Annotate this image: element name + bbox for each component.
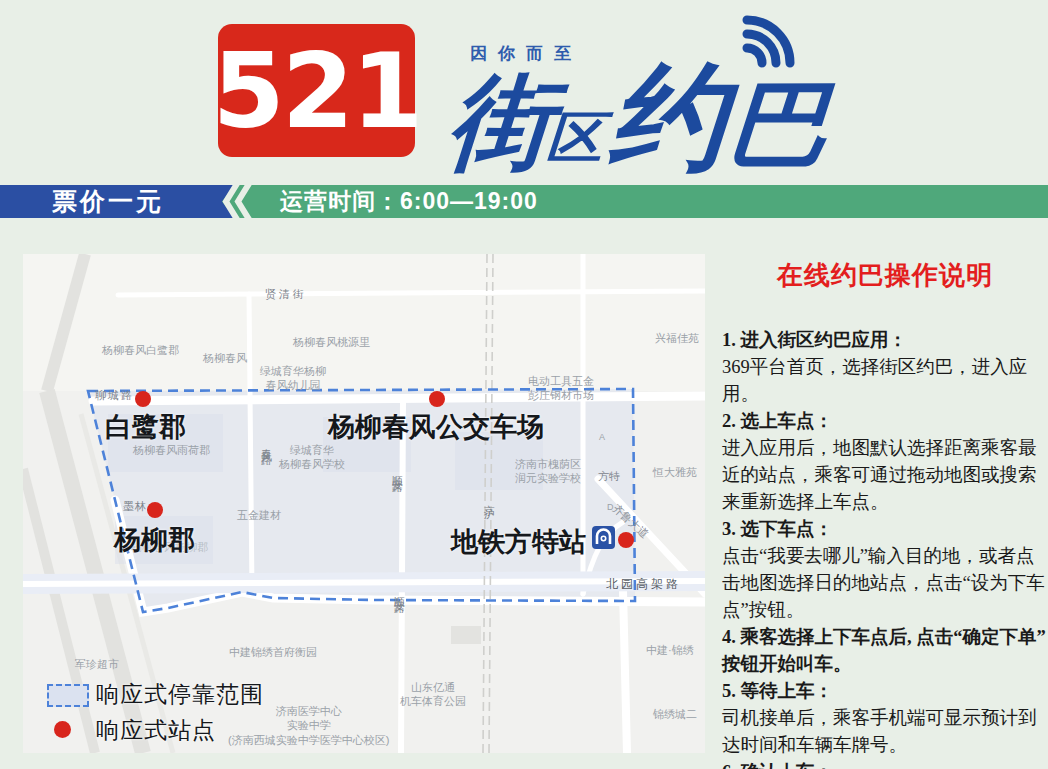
map-label: 绿城育华 杨柳春风学校 (279, 443, 345, 472)
legend-station-label: 响应式站点 (96, 715, 216, 746)
step-body: 司机接单后，乘客手机端可显示预计到达时间和车辆车牌号。 (722, 705, 1048, 759)
map-label: 杨柳春风桃源里 (293, 335, 370, 349)
wifi-signal-icon (733, 4, 805, 80)
instruction-step: 4. 乘客选择上下车点后, 点击“确定下单”按钮开始叫车。 (722, 624, 1048, 678)
step-heading: 5. 等待上车： (722, 678, 1048, 705)
info-banner: 票价一元 运营时间：6:00—19:00 (0, 185, 1048, 218)
instruction-step: 3. 选下车点：点击“我要去哪儿”输入目的地，或者点击地图选择日的地站点，点击“… (722, 516, 1048, 624)
map-label: 电动工具五金 彭庄钢材市场 (528, 374, 594, 403)
map-label: 顺安路 (392, 588, 406, 597)
step-body: 点击“我要去哪儿”输入目的地，或者点击地图选择日的地站点，点击“设为下车点”按钮… (722, 543, 1048, 624)
instruction-step: 2. 选上车点：进入应用后，地图默认选择距离乘客最近的站点，乘客可通过拖动地图或… (722, 408, 1048, 516)
instruction-step: 5. 等待上车：司机接单后，乘客手机端可显示预计到达时间和车辆车牌号。 (722, 678, 1048, 759)
map-label: 山东亿通 机车体育公园 (400, 680, 466, 709)
station-label: 杨柳春风公交车场 (328, 409, 544, 445)
legend-zone-swatch (47, 684, 89, 707)
map-label: 北园高架路 (606, 577, 681, 593)
station-label: 白鹭郡 (105, 409, 186, 445)
instructions-panel: 在线约巴操作说明 1. 进入街区约巴应用：369平台首页，选择街区约巴，进入应用… (722, 258, 1048, 769)
map-label: 绿城育华杨柳 春风幼儿园 (260, 364, 326, 393)
map-label: 济南医学中心 实验中学 (济南西城实验中学医学中心校区) (228, 704, 389, 747)
map-label: 京沪 (482, 496, 496, 502)
step-body: 369平台首页，选择街区约巴，进入应用。 (722, 354, 1048, 408)
map-label: 春风路 (259, 440, 273, 449)
metro-logo-icon (592, 526, 615, 553)
brand-char-3: 约 (607, 63, 730, 170)
step-heading: 2. 选上车点： (722, 408, 1048, 435)
map-label: 恒大雅苑 (653, 465, 697, 479)
map-label: 军珍超市 (75, 657, 119, 671)
map-label: 贤清街 (265, 287, 307, 301)
step-heading: 4. 乘客选择上下车点后, 点击“确定下单”按钮开始叫车。 (722, 624, 1048, 678)
step-body: 进入应用后，地图默认选择距离乘客最近的站点，乘客可通过拖动地图或搜索来重新选择上… (722, 435, 1048, 516)
map-label: 杨柳春风白鹭郡 (102, 343, 179, 357)
instruction-step: 1. 进入街区约巴应用：369平台首页，选择街区约巴，进入应用。 (722, 327, 1048, 408)
fare-banner: 票价一元 (0, 185, 216, 218)
brand-char-4: 巴 (725, 78, 831, 170)
fare-label: 票价一元 (52, 185, 164, 218)
station-dot (618, 532, 634, 548)
instruction-step: 6. 确认上车：车辆到达后，乘客手机端可以点击“我已上车”。 (722, 759, 1048, 769)
map-label: 杨柳春风雨荷郡 (133, 443, 210, 457)
instruction-steps: 1. 进入街区约巴应用：369平台首页，选择街区约巴，进入应用。2. 选上车点：… (722, 327, 1048, 769)
station-dot (135, 391, 151, 407)
chevron-divider-icon (216, 185, 256, 218)
step-heading: 3. 选下车点： (722, 516, 1048, 543)
station-label: 杨柳郡 (114, 522, 195, 558)
instructions-title: 在线约巴操作说明 (722, 258, 1048, 293)
map-label: 济南市槐荫区 润元实验学校 (515, 457, 581, 486)
station-dot (147, 502, 163, 518)
hours-banner: 运营时间：6:00—19:00 (256, 185, 1048, 218)
map-label: 杨柳春风 (203, 351, 247, 365)
route-number: 521 (212, 39, 420, 143)
legend-zone-label: 响应式停靠范围 (96, 679, 264, 710)
map-label: A (599, 432, 605, 444)
brand-char-2: 区 (545, 112, 605, 164)
map-label: 兴福佳苑 (655, 331, 699, 345)
brand-char-1: 街 (445, 74, 556, 170)
service-area-map: 贤清街杨柳春风白鹭郡杨柳春风杨柳春风桃源里绿城育华杨柳 春风幼儿园电动工具五金 … (23, 254, 705, 753)
map-label: 锦绣城二 (653, 707, 697, 721)
map-label: 中建·锦绣 (646, 643, 694, 657)
station-dot (429, 391, 445, 407)
map-label: 聊城路 (95, 388, 134, 402)
map-label: D (607, 502, 614, 514)
map-label: 墨林 (123, 499, 147, 513)
legend-station-dot (54, 721, 71, 738)
step-heading: 1. 进入街区约巴应用： (722, 327, 1048, 354)
station-label: 地铁方特站 (451, 524, 586, 560)
step-heading: 6. 确认上车： (722, 759, 1048, 769)
route-number-badge: 521 (218, 24, 415, 157)
map-label: 顺安路 (390, 467, 404, 476)
hours-label: 运营时间：6:00—19:00 (280, 186, 538, 217)
map-label: 中建锦绣首府衡园 (229, 645, 317, 659)
map-label: 五金建材 (237, 508, 281, 522)
map-label: 方特 (598, 469, 620, 483)
